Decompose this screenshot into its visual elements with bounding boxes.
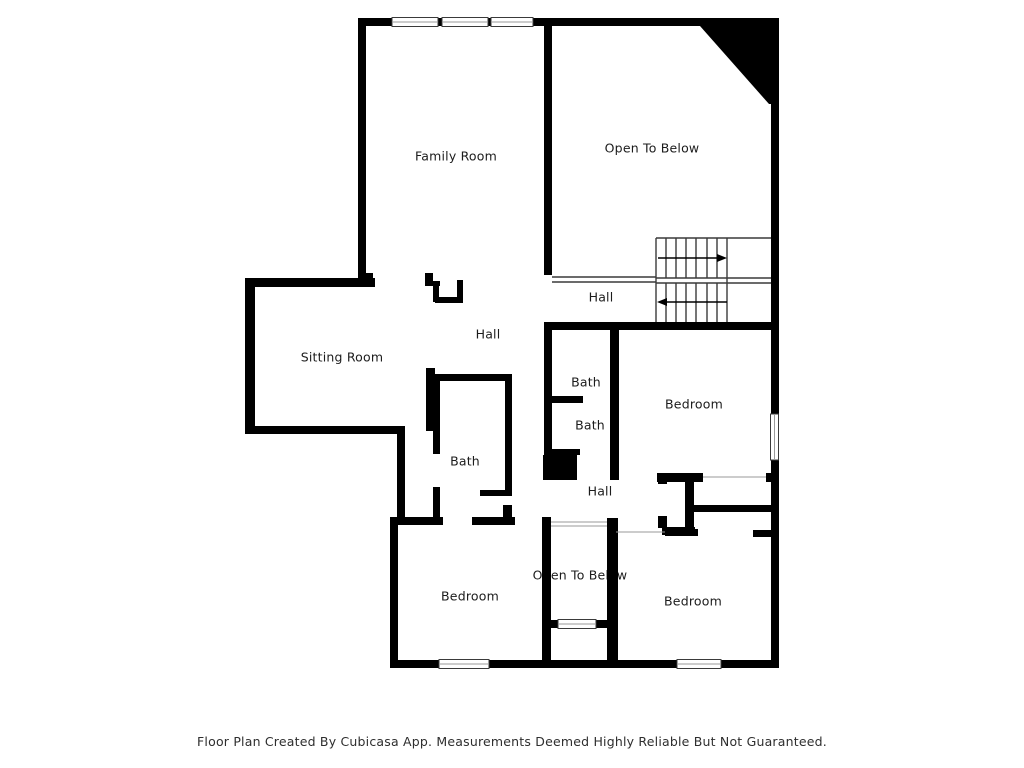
room-label-hall-center: Hall — [476, 327, 501, 342]
room-label-bedroom-bottom-right: Bedroom — [664, 594, 722, 609]
room-labels-layer: Family Room Open To Below Hall Hall Sitt… — [0, 0, 1024, 768]
room-label-family-room: Family Room — [415, 149, 497, 164]
room-label-bedroom-top-right: Bedroom — [665, 397, 723, 412]
floor-plan: Family Room Open To Below Hall Hall Sitt… — [0, 0, 1024, 768]
room-label-open-to-below-top: Open To Below — [605, 141, 700, 156]
disclaimer-text: Floor Plan Created By Cubicasa App. Meas… — [0, 734, 1024, 749]
room-label-hall-upper: Hall — [589, 290, 614, 305]
room-label-bath-mid: Bath — [575, 418, 605, 433]
room-label-sitting-room: Sitting Room — [301, 350, 384, 365]
room-label-bath-center: Bath — [450, 454, 480, 469]
room-label-bedroom-bottom-left: Bedroom — [441, 589, 499, 604]
room-label-hall-lower: Hall — [588, 484, 613, 499]
room-label-bath-top: Bath — [571, 375, 601, 390]
room-label-open-to-below-bottom: Open To Below — [533, 568, 628, 583]
